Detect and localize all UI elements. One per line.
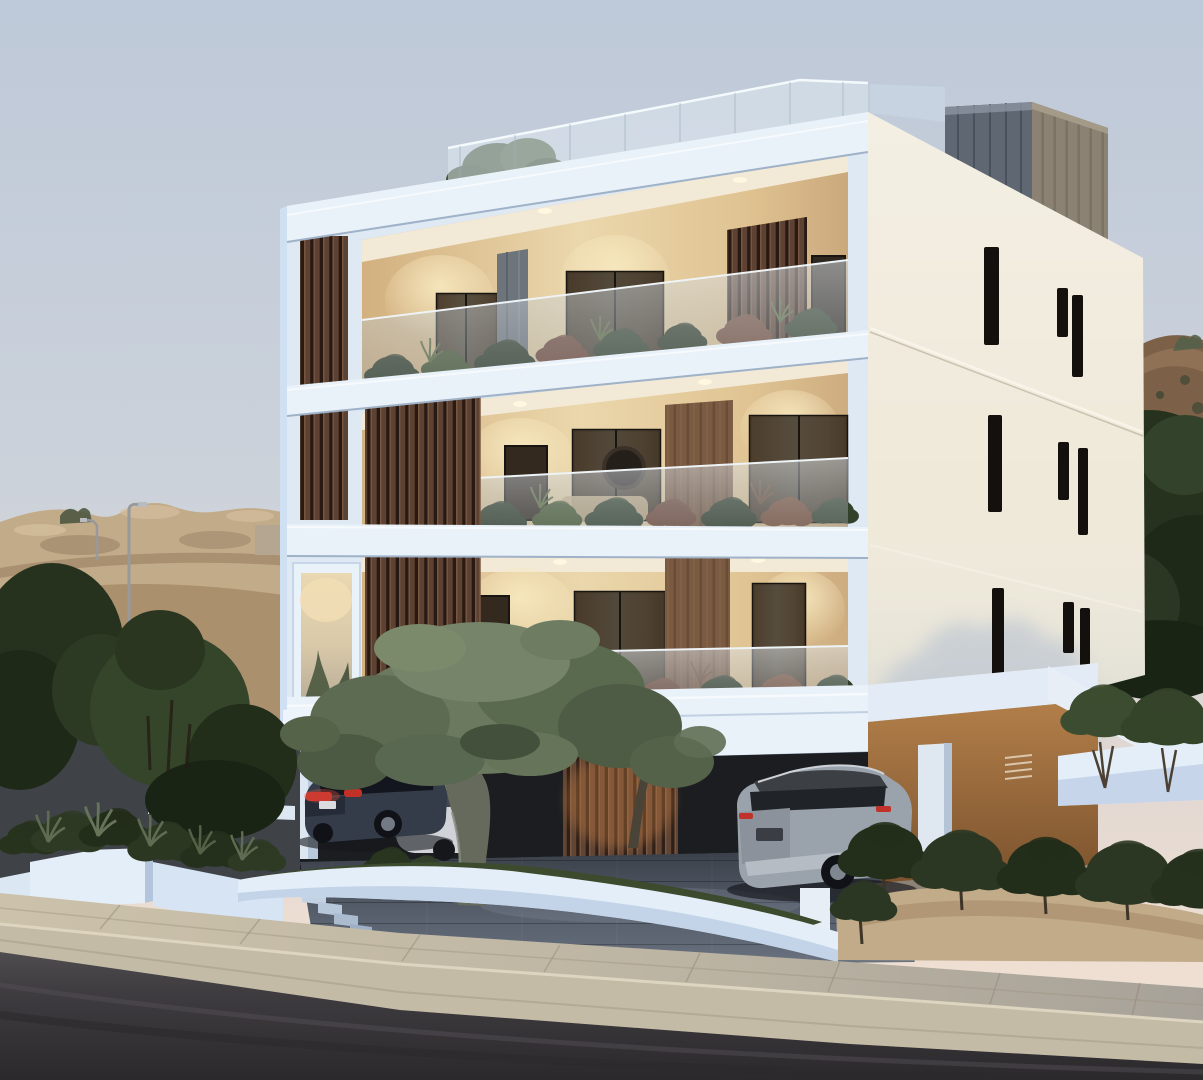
license-plate bbox=[319, 801, 336, 809]
taillight bbox=[739, 813, 753, 819]
taillight bbox=[876, 806, 891, 812]
render-svg bbox=[0, 0, 1203, 1080]
taillight bbox=[344, 789, 362, 797]
architectural-render-canvas bbox=[0, 0, 1203, 1080]
suv-plate bbox=[756, 828, 783, 841]
facade-left-side-sliver bbox=[280, 206, 287, 770]
